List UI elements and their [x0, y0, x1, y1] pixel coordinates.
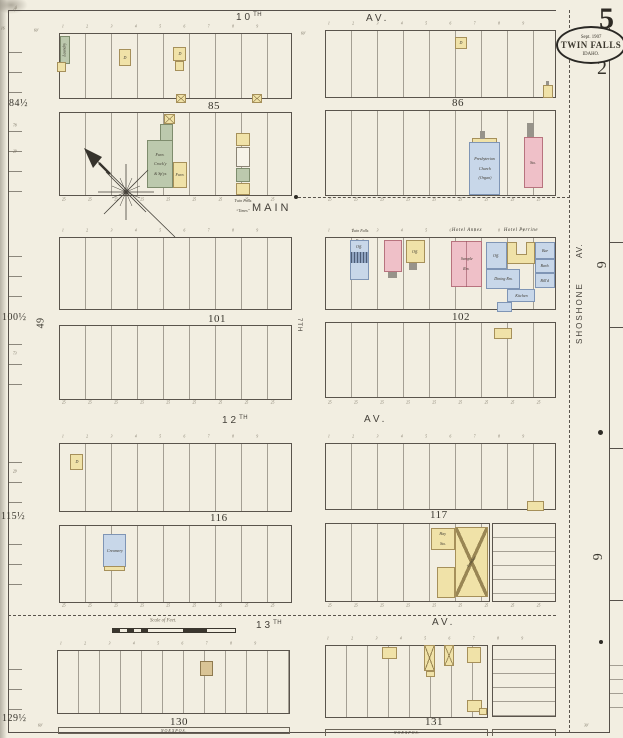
dwelling-2-label: D	[178, 52, 181, 57]
shed-2	[252, 94, 262, 103]
west-edge-ticks-r2b	[8, 325, 22, 400]
block-116-south-lots	[59, 525, 292, 603]
perrine-office-label: Off.	[493, 253, 499, 258]
perrine-bar-label: Bar	[542, 248, 548, 253]
times-building-d	[236, 183, 250, 195]
hay-store-label-2: Sto.	[440, 541, 446, 546]
east-block-edge-line	[609, 28, 610, 733]
street-label-10th: 10TH	[236, 12, 262, 23]
block-131-lots	[325, 645, 488, 718]
scale-bar	[112, 628, 236, 633]
bank-office-label: Off.	[356, 244, 362, 249]
shed-1	[176, 94, 186, 103]
creamery-building: Creamery	[103, 534, 126, 567]
perrine-billiards-label: Bill'd	[541, 278, 550, 283]
dwelling-2-annex	[175, 61, 184, 71]
perrine-barber: Barb.	[535, 259, 555, 273]
office-store-label: Off.	[412, 249, 418, 254]
block-130-lots	[57, 650, 290, 714]
scale-label: Scale of Feet.	[150, 618, 176, 623]
dwelling-4-chimney	[546, 81, 549, 85]
title-stamp-oval: Sept. 1907 TWIN FALLS IDAHO.	[556, 26, 623, 64]
church-chimney	[480, 131, 485, 139]
page-edge-shadow	[0, 0, 7, 738]
dim-29-a: 29	[13, 150, 17, 154]
hay-store: Hay Sto.	[431, 528, 455, 550]
margin-number-6-lower: 6	[589, 553, 603, 561]
dim-73: 73	[13, 352, 17, 356]
dwelling-5-label: D	[75, 460, 78, 465]
store-label: Sto.	[530, 160, 536, 165]
sanborn-map-sheet: 1 2 3 4 5 6 7 8 9 1 2 3 4 5 6 7 8 9 25 2…	[0, 0, 623, 738]
scale-seg-8	[207, 629, 235, 632]
perrine-office: Off.	[486, 242, 507, 269]
dim-30-bottom-right: 30'	[584, 724, 588, 728]
street-label-shoshone-av: AV.	[576, 238, 584, 258]
shoshone-center-dashed-line	[569, 10, 570, 733]
b131-shed-1-annex	[426, 671, 435, 677]
b131-shed-1	[424, 645, 435, 671]
block-number-102: 102	[452, 312, 470, 323]
east-tick-4	[609, 600, 623, 601]
stamp-city: TWIN FALLS	[561, 41, 622, 50]
dim-16: 16	[1, 27, 5, 31]
street-10th-suffix: TH	[253, 12, 262, 18]
street-label-12th: 12TH	[222, 415, 248, 426]
street-label-12th-av: AV.	[364, 415, 387, 425]
laundry-label: Laundry	[63, 43, 68, 57]
dwelling-1: D	[119, 49, 131, 66]
bank-building: Off.	[350, 240, 369, 280]
store-building: Sto.	[524, 137, 543, 188]
times-building-c	[236, 168, 250, 182]
block-117-east-lots	[492, 523, 556, 602]
west-edge-ticks-r2a	[8, 237, 22, 311]
perrine-dining-label: Dining Rm.	[494, 277, 512, 282]
scale-seg-5	[141, 629, 148, 632]
times-label-1: Twin Falls	[231, 198, 256, 203]
block-101-north-lots	[59, 237, 292, 310]
13th-av-dashed-line	[8, 615, 556, 616]
street-13th-suffix: TH	[273, 620, 282, 626]
block-number-116: 116	[210, 513, 228, 524]
hotel-perrine-label: Hotel Perrine	[500, 228, 542, 233]
dim-29-b: 29	[13, 470, 17, 474]
dim-60-bottom: 60'	[38, 724, 42, 728]
south-strip-130-label: N O E X P O S .	[161, 728, 187, 733]
east-partial-lots	[609, 652, 623, 712]
office-store: Off.	[406, 240, 425, 263]
west-edge-ticks-r3a	[8, 443, 22, 511]
block-116-north-lots	[59, 443, 292, 512]
street-10th-number: 10	[236, 12, 253, 23]
scale-seg-2	[120, 629, 127, 632]
dim-78: 78	[13, 124, 17, 128]
perrine-kitchen-label: Kitchen	[515, 293, 527, 298]
border-top	[8, 10, 556, 11]
stamp-state: IDAHO.	[583, 51, 600, 56]
shed-3	[164, 114, 175, 124]
scale-seg-6	[148, 629, 183, 632]
street-label-10th-av: AV.	[366, 14, 389, 24]
presbyterian-church: Presbyterian Church (Organ)	[469, 142, 500, 195]
survey-dot-southeast	[599, 640, 603, 644]
scale-seg-4	[134, 629, 141, 632]
block-number-85: 85	[208, 101, 220, 112]
margin-number-49: 49	[37, 318, 47, 329]
dwelling-1-label: D	[124, 55, 127, 60]
west-edge-ticks-r3b	[8, 525, 22, 603]
lumber-label: Lumber	[466, 556, 477, 569]
pink-store	[384, 240, 402, 272]
store-tower	[527, 123, 534, 137]
block-131-east-lots	[492, 645, 556, 717]
south-strip-131-east	[492, 729, 556, 736]
times-building-a	[236, 133, 250, 146]
lot-numbers-131: 1 2 3 4 5 6 7 8 9	[327, 637, 523, 641]
creamery-label: Creamery	[107, 548, 123, 553]
block-number-117: 117	[430, 510, 448, 521]
block-number-131: 131	[425, 717, 443, 728]
survey-dot-main	[294, 195, 298, 199]
west-edge-ticks-r4	[8, 650, 22, 712]
bank-label-1: Twin Falls	[349, 228, 371, 233]
street-12th-suffix: TH	[239, 415, 248, 421]
lot-numbers-116: 1 2 3 4 5 6 7 8 9	[62, 435, 258, 439]
lot-dims-101: 25 25 25 25 25 25 25 25 25	[62, 401, 274, 405]
dwelling-3-label: D	[460, 41, 463, 46]
street-12th-number: 12	[222, 415, 239, 426]
block-86-south-lots	[325, 110, 556, 196]
dwelling-6	[527, 501, 544, 511]
b131-store-3-annex	[479, 708, 487, 715]
compass-rose-icon	[58, 130, 188, 245]
block-number-100: 100½	[2, 313, 27, 323]
pink-store-annex	[388, 272, 397, 278]
times-label-2: “Times”	[231, 208, 256, 213]
times-label: Twin Falls “Times”	[218, 196, 268, 215]
dwelling-2: D	[173, 47, 186, 61]
office-store-annex	[409, 263, 417, 270]
east-tick-3	[609, 448, 623, 449]
lot-numbers-117: 1 2 3 4 5 6 7 8 9	[328, 435, 524, 439]
church-label-1: Presbyterian	[474, 157, 495, 162]
block-86-north-lots	[325, 30, 556, 98]
block-102-south-lots	[325, 322, 556, 398]
south-strip-131: N O E X P O S .	[325, 729, 488, 736]
south-strip-131-label: N O E X P O S .	[394, 731, 420, 736]
perrine-barber-label: Barb.	[541, 264, 550, 269]
church-label-2: Church	[479, 166, 491, 171]
lot-dims-102: 25 25 25 25 25 25 25 25 25	[328, 401, 540, 405]
lumber-yard-wing	[437, 567, 455, 598]
lot-numbers-130: 1 2 3 4 5 6 7 8 9	[60, 642, 256, 646]
church-label-3: (Organ)	[478, 176, 491, 181]
block-number-115: 115½	[1, 512, 25, 522]
dwelling-4	[543, 85, 553, 98]
lumber-yard-main: Lumber	[455, 527, 488, 597]
scale-seg-3	[127, 629, 134, 632]
perrine-kitchen: Kitchen	[507, 289, 535, 302]
street-13th-number: 13	[256, 620, 273, 631]
street-label-13th-av: AV.	[432, 618, 455, 628]
lot-dims-116: 25 25 25 25 25 25 25 25 25	[62, 604, 274, 608]
lot-numbers-86: 1 2 3 4 5 6 7 8 9	[328, 22, 524, 26]
b131-store-1	[382, 647, 397, 659]
scale-seg-7	[183, 629, 207, 632]
hay-store-label-1: Hay	[440, 532, 447, 537]
block-101-south-lots	[59, 325, 292, 400]
perrine-courtyard	[516, 242, 527, 255]
scale-seg-1	[113, 629, 120, 632]
west-edge-ticks-r1a	[8, 33, 22, 97]
perrine-dining-room: Dining Rm.	[486, 269, 520, 289]
dim-60-top-mid: 60'	[301, 32, 305, 36]
block-number-84: 84½	[9, 99, 28, 109]
b131-store-2	[467, 647, 481, 663]
block-number-101: 101	[208, 314, 226, 325]
stamp-date: Sept. 1907	[581, 34, 602, 39]
lot-numbers-85: 1 2 3 4 5 6 7 8 9	[62, 25, 258, 29]
hotel-annex-label: Hotel Annex	[449, 228, 485, 233]
block-117-north-lots	[325, 443, 556, 510]
bank-hatch-band	[351, 252, 368, 263]
east-tick-1	[609, 242, 623, 243]
b131-shed-2	[444, 645, 454, 666]
times-building-b	[236, 147, 250, 167]
dim-60-top-left: 60'	[34, 29, 38, 33]
street-label-7th: 7TH	[296, 318, 302, 332]
east-tick-2	[609, 327, 623, 328]
lot-dims-117: 25 25 25 25 25 25 25 25 25	[328, 604, 540, 608]
dwelling-7	[200, 661, 213, 676]
perrine-billiards: Bill'd	[535, 273, 555, 288]
survey-dot-shoshone	[598, 430, 603, 435]
perrine-rear-wing	[497, 302, 512, 312]
perrine-bar: Bar	[535, 242, 555, 259]
street-label-13th: 13TH	[256, 620, 282, 631]
dwelling-5: D	[70, 454, 83, 470]
dwelling-3: D	[455, 37, 467, 49]
block-number-129: 129½	[2, 714, 27, 724]
laundry-annex	[57, 62, 66, 72]
coal-shed	[494, 328, 512, 339]
lot-dims-86: 25 25 25 25 25 25 25 25 25	[328, 198, 540, 202]
south-strip-130: N O E X P O S .	[58, 727, 290, 734]
creamery-base	[104, 566, 125, 571]
block-number-86: 86	[452, 98, 464, 109]
street-label-shoshone: SHOSHONE	[576, 264, 584, 344]
hotel-annex-divider	[466, 241, 467, 287]
margin-number-6-upper: 6	[593, 261, 607, 269]
laundry-building: Laundry	[60, 36, 70, 64]
